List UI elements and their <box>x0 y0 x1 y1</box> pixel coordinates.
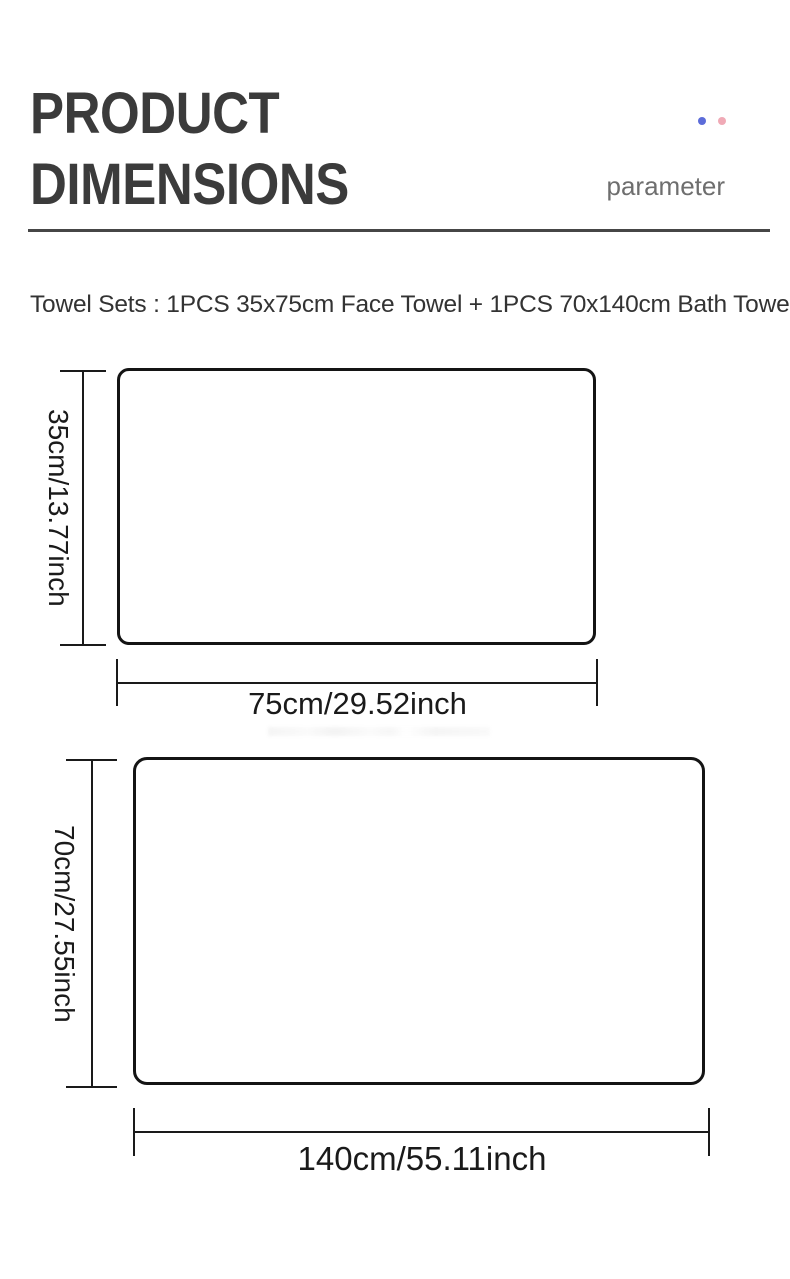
bath-towel-height-dim-line <box>91 760 93 1087</box>
header-divider <box>28 229 770 232</box>
face-towel-height-label: 35cm/13.77inch <box>42 370 74 646</box>
blue-dot-icon <box>698 117 706 125</box>
parameter-label: parameter <box>607 171 726 202</box>
bath-towel-outline <box>133 757 705 1085</box>
face-towel-height-dim-line <box>82 370 84 646</box>
bath-towel-height-label: 70cm/27.55inch <box>48 760 80 1087</box>
bath-towel-width-label: 140cm/55.11inch <box>134 1140 710 1178</box>
bath-towel-width-dim-line <box>134 1131 710 1133</box>
pink-dot-icon <box>718 117 726 125</box>
face-towel-width-dim-line <box>117 682 598 684</box>
faded-text-artifact <box>268 727 490 736</box>
page-title: PRODUCT DIMENSIONS <box>30 78 349 220</box>
face-towel-outline <box>117 368 596 645</box>
towel-set-description: Towel Sets : 1PCS 35x75cm Face Towel + 1… <box>30 291 775 319</box>
face-towel-width-label: 75cm/29.52inch <box>117 686 598 722</box>
page-title-line-1: PRODUCT <box>30 78 349 149</box>
page-title-line-2: DIMENSIONS <box>30 149 349 220</box>
product-dimensions-page: PRODUCT DIMENSIONS parameter Towel Sets … <box>0 0 790 1279</box>
